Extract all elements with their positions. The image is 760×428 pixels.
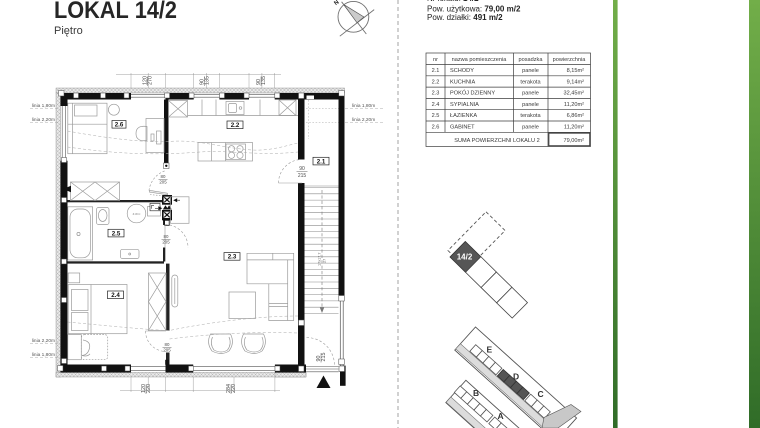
svg-text:32,45m²: 32,45m²	[563, 91, 584, 97]
svg-text:2.2: 2.2	[231, 122, 240, 129]
svg-text:B: B	[473, 388, 479, 398]
svg-text:SUMA POWIERZCHNI LOKALU 2: SUMA POWIERZCHNI LOKALU 2	[454, 138, 539, 144]
svg-text:11,20m²: 11,20m²	[564, 125, 584, 131]
svg-text:2.6: 2.6	[115, 122, 124, 129]
svg-text:2.5: 2.5	[432, 113, 440, 119]
svg-text:14/2: 14/2	[457, 253, 473, 262]
svg-text:D: D	[513, 372, 519, 382]
svg-text:9,14m²: 9,14m²	[567, 79, 585, 85]
svg-text:2.3: 2.3	[432, 91, 440, 97]
svg-text:linia 2,20m: linia 2,20m	[32, 117, 55, 123]
svg-text:90: 90	[299, 166, 305, 172]
svg-text:Nr lokalu: 14/2: Nr lokalu: 14/2	[427, 0, 479, 3]
svg-text:SCHODY: SCHODY	[450, 68, 474, 74]
svg-text:powierzchnia: powierzchnia	[553, 57, 587, 63]
svg-text:KUCHNIA: KUCHNIA	[450, 79, 475, 85]
svg-text:terakota: terakota	[520, 79, 541, 85]
svg-text:Z.W.C: Z.W.C	[133, 212, 141, 216]
svg-text:27: 27	[323, 259, 327, 263]
svg-text:2.4: 2.4	[111, 292, 120, 299]
svg-text:205: 205	[163, 348, 171, 353]
svg-text:Pow. działki: 491 m/2: Pow. działki: 491 m/2	[427, 13, 503, 22]
svg-text:ŁAZIENKA: ŁAZIENKA	[450, 113, 477, 119]
svg-text:Piętro: Piętro	[54, 25, 83, 37]
svg-text:205: 205	[159, 180, 167, 185]
svg-text:linia 1,80m: linia 1,80m	[352, 103, 375, 109]
svg-text:panele: panele	[522, 91, 539, 97]
svg-text:2.6: 2.6	[432, 125, 440, 131]
svg-text:17x17,7: 17x17,7	[318, 252, 322, 266]
svg-text:SYPIALNIA: SYPIALNIA	[450, 102, 479, 108]
svg-text:A: A	[498, 411, 504, 421]
svg-text:panele: panele	[522, 68, 539, 74]
svg-text:205: 205	[162, 240, 170, 245]
svg-text:2.1: 2.1	[317, 158, 326, 165]
svg-text:8,15m²: 8,15m²	[567, 68, 585, 74]
svg-text:215: 215	[298, 173, 307, 179]
svg-text:POKÓJ DZIENNY: POKÓJ DZIENNY	[450, 90, 495, 97]
svg-text:2.1: 2.1	[432, 68, 440, 74]
svg-text:linia 2,20m: linia 2,20m	[352, 117, 375, 123]
svg-text:GABINET: GABINET	[450, 125, 475, 131]
svg-text:11,20m²: 11,20m²	[564, 102, 584, 108]
svg-text:6,86m²: 6,86m²	[567, 113, 585, 119]
svg-text:nazwa pomieszczenia: nazwa pomieszczenia	[452, 57, 508, 63]
svg-text:posadzka: posadzka	[519, 57, 544, 63]
svg-text:terakota: terakota	[520, 113, 541, 119]
svg-text:E: E	[487, 345, 493, 355]
svg-text:C: C	[538, 389, 544, 399]
svg-text:LOKAL 14/2: LOKAL 14/2	[54, 0, 177, 24]
svg-text:135: 135	[205, 76, 211, 85]
svg-text:79,00m²: 79,00m²	[563, 138, 584, 144]
svg-text:2.4: 2.4	[432, 102, 440, 108]
svg-text:2.5: 2.5	[112, 230, 121, 237]
svg-text:2.3: 2.3	[228, 254, 237, 261]
svg-text:80: 80	[161, 174, 166, 179]
svg-text:80: 80	[164, 234, 169, 239]
svg-text:panele: panele	[522, 125, 539, 131]
svg-text:nr: nr	[433, 57, 438, 63]
svg-text:220: 220	[146, 384, 152, 393]
svg-text:panele: panele	[522, 102, 539, 108]
svg-text:80: 80	[165, 342, 170, 347]
svg-text:linia 1,80m: linia 1,80m	[32, 103, 55, 109]
svg-text:2.2: 2.2	[432, 79, 440, 85]
svg-text:215: 215	[321, 353, 327, 362]
